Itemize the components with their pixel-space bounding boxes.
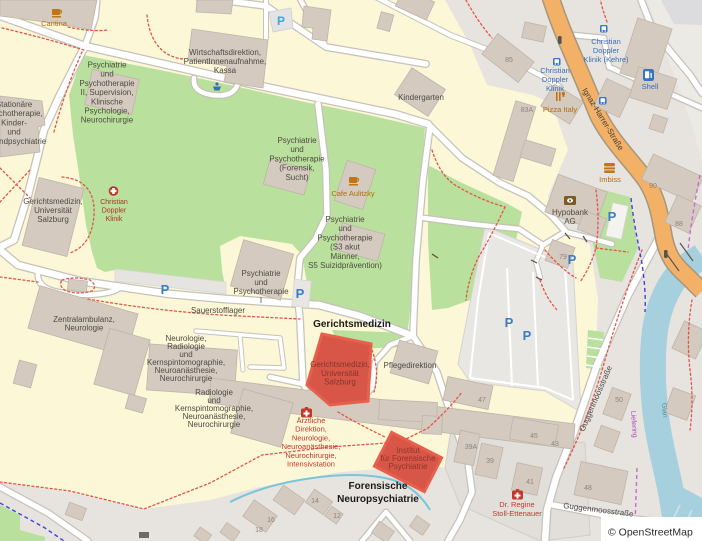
svg-text:16: 16 <box>267 517 275 524</box>
svg-text:Gerichtsmedizin: Gerichtsmedizin <box>313 319 391 330</box>
svg-text:P: P <box>608 209 617 224</box>
svg-text:88: 88 <box>675 221 683 228</box>
svg-text:© OpenStreetMap: © OpenStreetMap <box>608 527 693 539</box>
svg-text:85: 85 <box>505 57 513 64</box>
svg-text:79: 79 <box>559 254 567 261</box>
svg-text:P: P <box>296 286 305 301</box>
svg-text:39A: 39A <box>465 444 478 451</box>
svg-text:18: 18 <box>255 527 263 534</box>
svg-text:43: 43 <box>551 441 559 448</box>
svg-text:Pizza Italy: Pizza Italy <box>543 105 577 114</box>
svg-text:Kindergarten: Kindergarten <box>398 93 444 102</box>
svg-text:41: 41 <box>526 479 534 486</box>
svg-text:12: 12 <box>333 513 341 520</box>
svg-text:P: P <box>505 315 514 330</box>
svg-text:P: P <box>523 328 532 343</box>
svg-text:50: 50 <box>615 397 623 404</box>
svg-text:Pflegedirektion: Pflegedirektion <box>384 361 437 370</box>
svg-text:Imbiss: Imbiss <box>599 175 621 184</box>
svg-text:Glan: Glan <box>660 403 668 418</box>
svg-text:83A: 83A <box>521 107 534 114</box>
svg-text:P: P <box>277 14 285 28</box>
svg-text:Cafe Aulitzky: Cafe Aulitzky <box>331 189 375 198</box>
svg-text:39: 39 <box>486 458 494 465</box>
svg-text:Cantina: Cantina <box>41 19 68 28</box>
svg-text:45: 45 <box>530 433 538 440</box>
svg-text:P: P <box>568 252 577 267</box>
svg-text:47: 47 <box>478 397 486 404</box>
svg-text:Sauerstofflager: Sauerstofflager <box>191 306 245 315</box>
svg-text:48: 48 <box>584 485 592 492</box>
svg-text:P: P <box>161 282 170 297</box>
svg-text:14: 14 <box>311 498 319 505</box>
svg-text:Shell: Shell <box>642 82 659 91</box>
svg-text:90: 90 <box>649 183 657 190</box>
